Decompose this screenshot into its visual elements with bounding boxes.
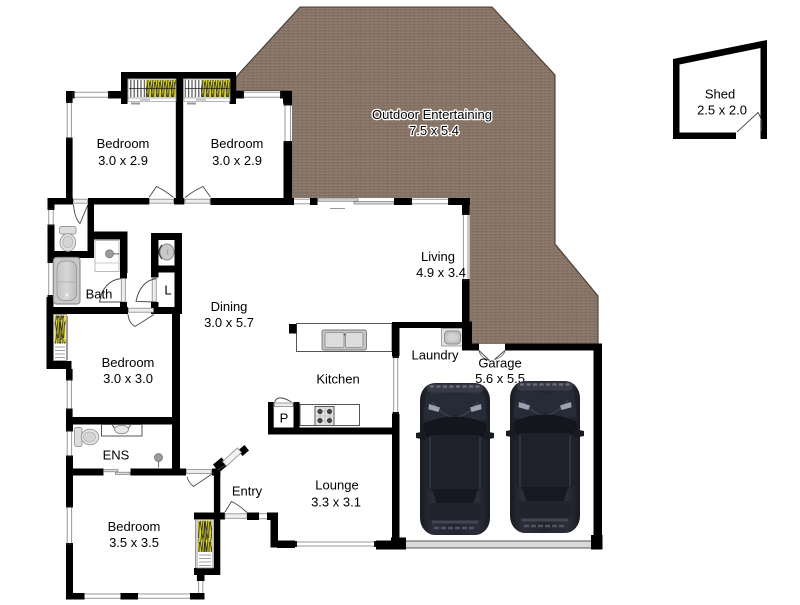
- svg-text:3.3 x 3.1: 3.3 x 3.1: [311, 495, 361, 510]
- svg-text:3.0 x 2.9: 3.0 x 2.9: [98, 153, 148, 168]
- svg-text:Outdoor Entertaining: Outdoor Entertaining: [372, 107, 492, 122]
- svg-text:Entry: Entry: [232, 484, 263, 499]
- svg-text:Shed: Shed: [705, 87, 735, 102]
- svg-text:3.0 x 3.0: 3.0 x 3.0: [103, 371, 153, 386]
- svg-text:Bedroom: Bedroom: [97, 136, 150, 151]
- svg-text:Bedroom: Bedroom: [108, 519, 161, 534]
- svg-text:Lounge: Lounge: [315, 478, 358, 493]
- svg-text:Bedroom: Bedroom: [211, 136, 264, 151]
- svg-text:4.9 x 3.4: 4.9 x 3.4: [416, 265, 466, 280]
- svg-text:3.0 x 2.9: 3.0 x 2.9: [212, 153, 262, 168]
- svg-text:Bath: Bath: [86, 287, 113, 302]
- svg-text:3.0 x 5.7: 3.0 x 5.7: [204, 315, 254, 330]
- svg-text:L: L: [164, 283, 171, 298]
- svg-text:3.5 x 3.5: 3.5 x 3.5: [109, 535, 159, 550]
- svg-text:Kitchen: Kitchen: [316, 372, 359, 387]
- svg-text:ENS: ENS: [103, 448, 130, 463]
- svg-text:Dining: Dining: [211, 299, 248, 314]
- svg-text:Living: Living: [421, 249, 455, 264]
- svg-text:2.5 x 2.0: 2.5 x 2.0: [697, 103, 747, 118]
- svg-text:7.5 x 5.4: 7.5 x 5.4: [409, 123, 459, 138]
- svg-text:P: P: [280, 411, 289, 426]
- svg-text:Laundry: Laundry: [412, 348, 459, 363]
- svg-text:Garage: Garage: [478, 356, 521, 371]
- svg-text:Bedroom: Bedroom: [102, 355, 155, 370]
